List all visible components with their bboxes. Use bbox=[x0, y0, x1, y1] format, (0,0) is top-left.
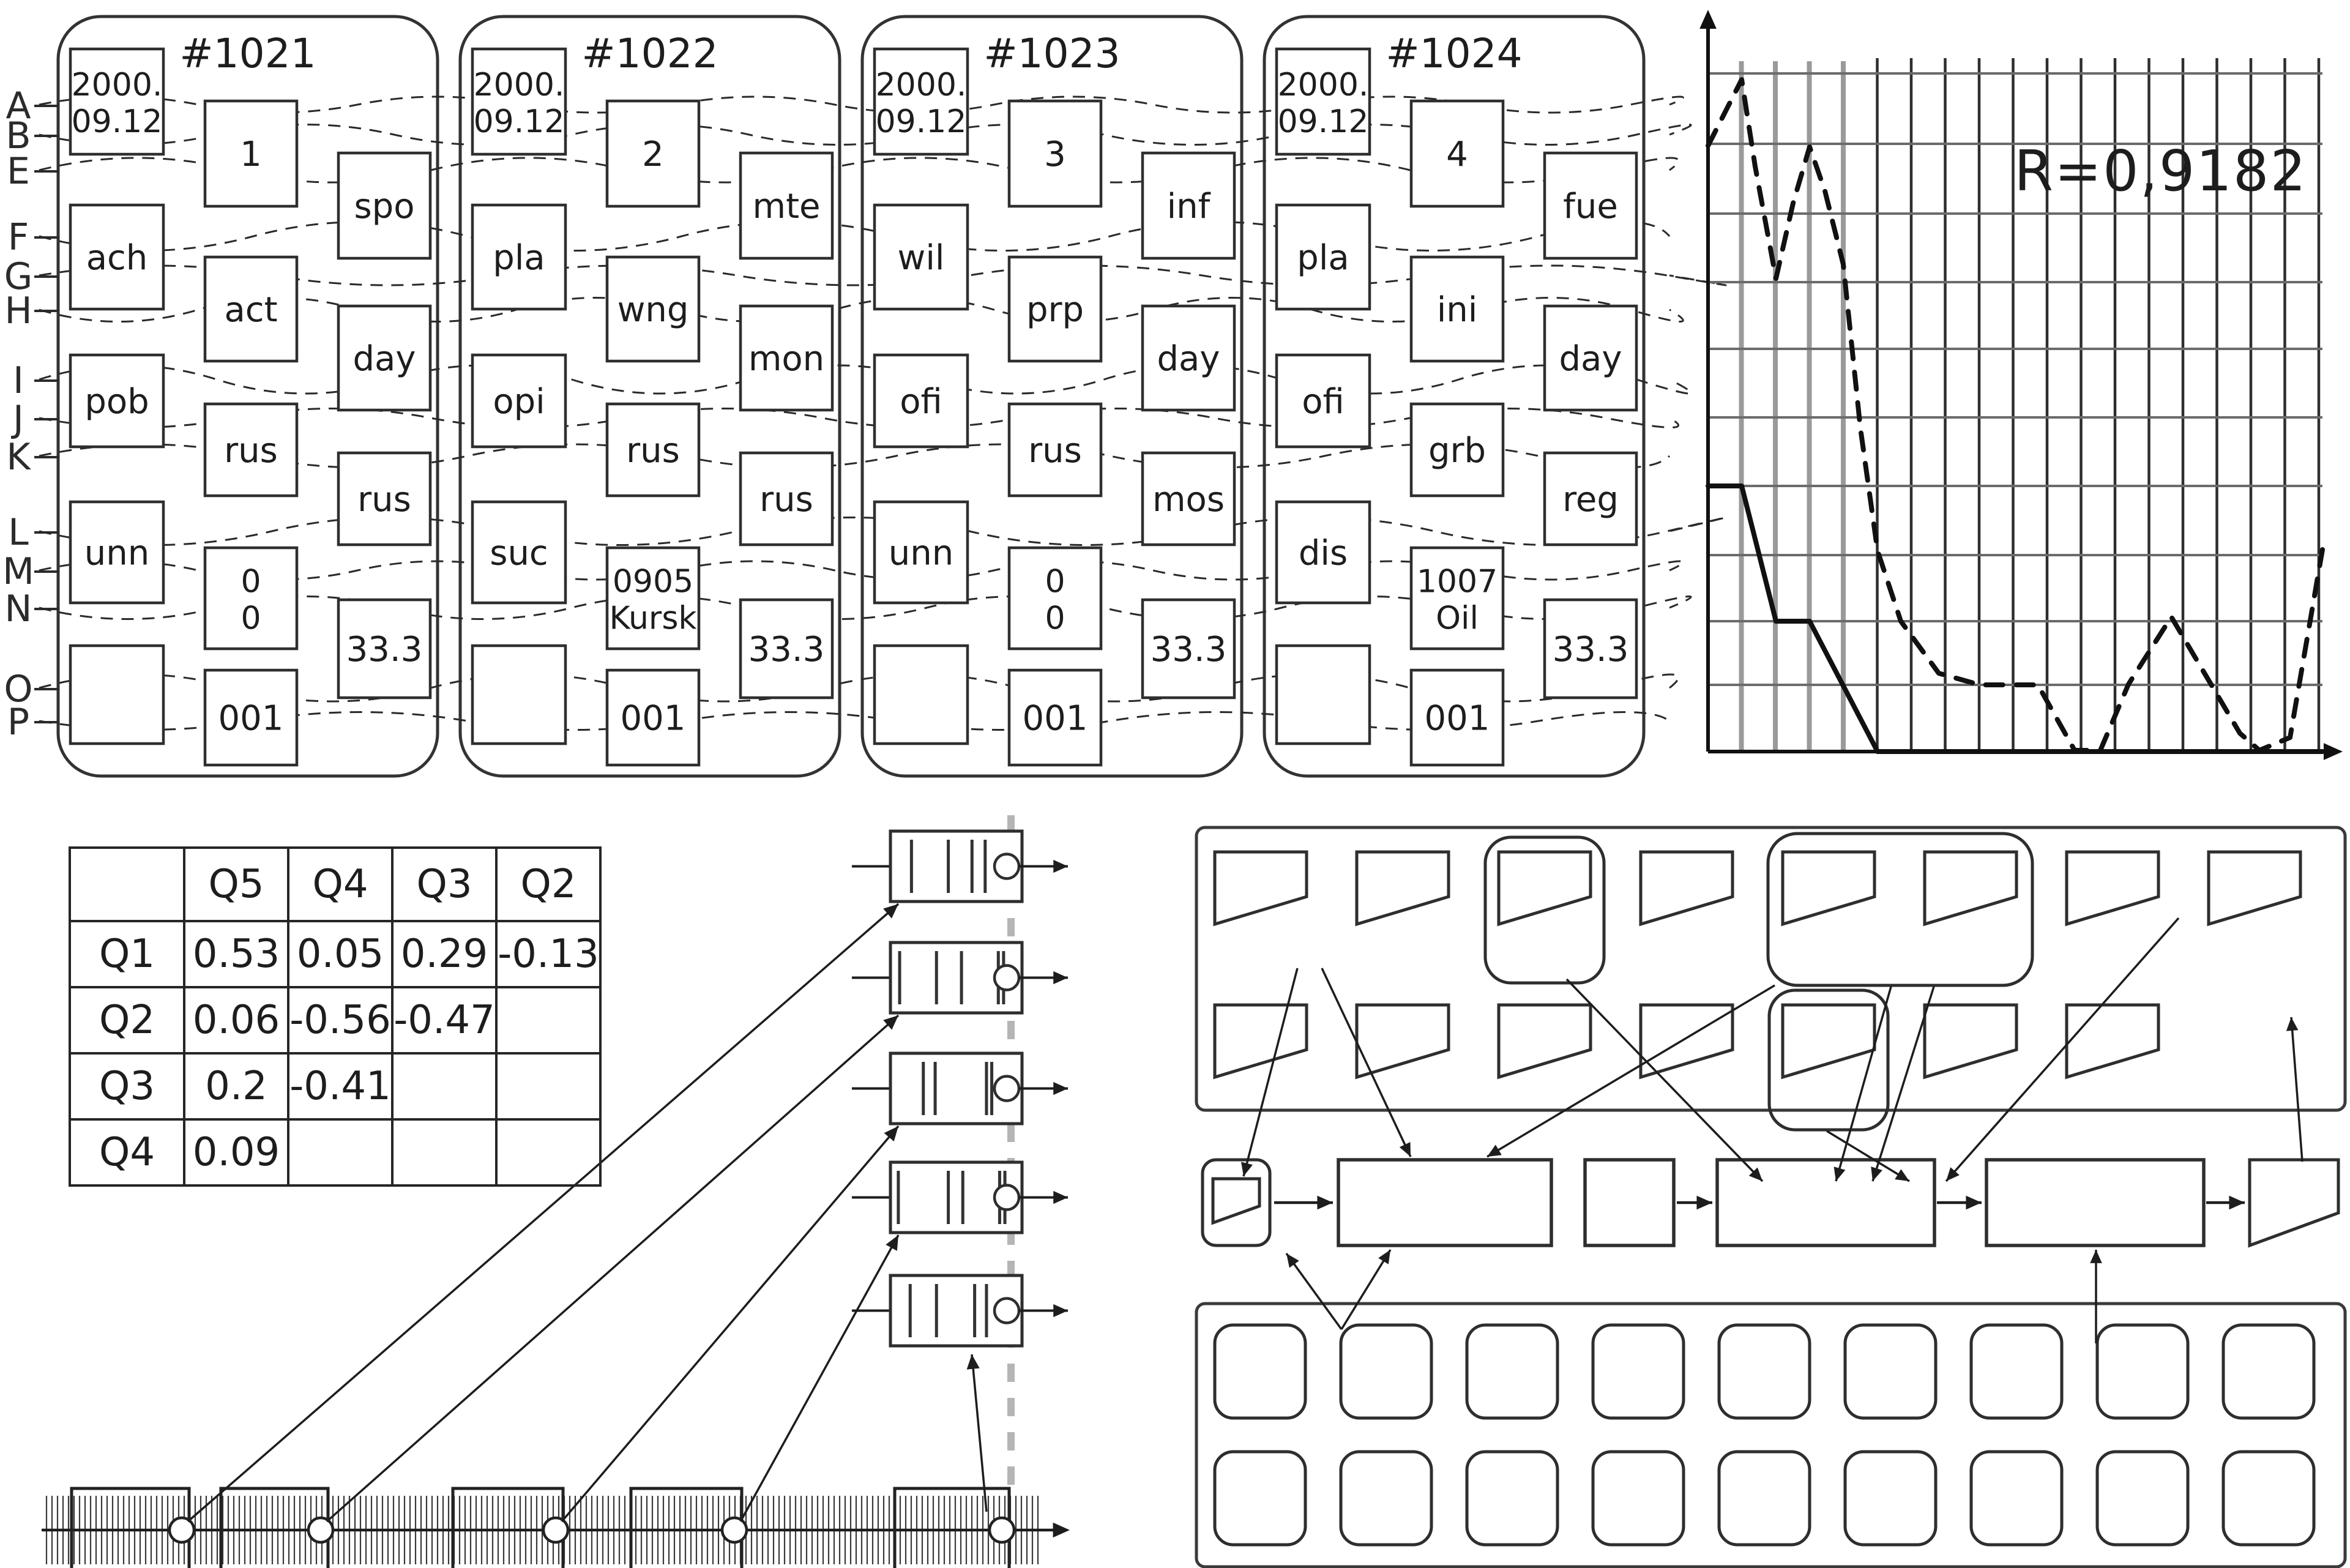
table-row-Q4: Q40.09 bbox=[70, 1119, 600, 1185]
svg-text:day: day bbox=[1157, 339, 1220, 379]
row-label-I: I bbox=[13, 359, 24, 402]
case-library-bottom bbox=[1196, 1304, 2345, 1567]
svg-text:pob: pob bbox=[84, 382, 149, 422]
svg-text:wng: wng bbox=[617, 290, 689, 330]
corner-cell bbox=[70, 848, 184, 921]
memory-cell bbox=[1467, 1452, 1557, 1545]
record-id: #1023 bbox=[983, 30, 1120, 77]
svg-text:spo: spo bbox=[354, 187, 415, 226]
correlation-table: Q5Q4Q3Q2Q10.530.050.29-0.13Q20.06-0.56-0… bbox=[69, 846, 602, 1187]
row-header: Q4 bbox=[70, 1119, 184, 1185]
correlation-coefficient-label: R=0,9182 bbox=[2013, 138, 2307, 204]
flag-top-3 bbox=[1499, 852, 1591, 924]
strip-cut-point bbox=[308, 1518, 333, 1542]
svg-text:33.3: 33.3 bbox=[748, 630, 825, 670]
svg-text:unn: unn bbox=[84, 534, 149, 573]
row-label-M: M bbox=[2, 550, 34, 593]
row-label-F: F bbox=[8, 216, 29, 259]
svg-text:rus: rus bbox=[224, 431, 278, 471]
svg-text:2000.: 2000. bbox=[1278, 67, 1369, 103]
row-label-H: H bbox=[4, 289, 32, 332]
flag-top-1 bbox=[1215, 852, 1307, 924]
svg-text:09.12: 09.12 bbox=[474, 103, 565, 140]
svg-text:33.3: 33.3 bbox=[1151, 630, 1227, 670]
svg-text:inf: inf bbox=[1167, 187, 1211, 226]
svg-text:wil: wil bbox=[898, 238, 945, 278]
row-labels: ABEFGHIJKLMNOP bbox=[2, 84, 59, 744]
svg-text:ini: ini bbox=[1437, 290, 1478, 330]
col-header-Q3: Q3 bbox=[392, 848, 496, 921]
svg-text:33.3: 33.3 bbox=[346, 630, 423, 670]
strip-cut-point bbox=[990, 1518, 1014, 1542]
svg-text:09.12: 09.12 bbox=[1278, 103, 1369, 140]
table-cell: -0.56 bbox=[288, 987, 392, 1053]
field-left-3 bbox=[472, 646, 565, 744]
svg-text:fue: fue bbox=[1563, 187, 1618, 226]
chromosome-box-5 bbox=[852, 1275, 1068, 1346]
record-id: #1022 bbox=[581, 30, 718, 77]
svg-text:1007: 1007 bbox=[1417, 564, 1498, 600]
svg-text:09.12: 09.12 bbox=[876, 103, 967, 140]
svg-text:Oil: Oil bbox=[1436, 600, 1479, 637]
correlation-chart bbox=[1699, 10, 2343, 760]
row-label-L: L bbox=[8, 511, 29, 554]
table-cell: 0.06 bbox=[184, 987, 288, 1053]
svg-text:mte: mte bbox=[753, 187, 821, 226]
crossover-point bbox=[994, 1077, 1019, 1101]
svg-text:reg: reg bbox=[1562, 480, 1619, 520]
output-pennant bbox=[2250, 1160, 2338, 1245]
svg-text:dis: dis bbox=[1299, 534, 1348, 573]
flow-row bbox=[1203, 1160, 2338, 1245]
memory-cell bbox=[1341, 1452, 1431, 1545]
table-row-Q2: Q20.06-0.56-0.47 bbox=[70, 987, 600, 1053]
col-header-Q4: Q4 bbox=[288, 848, 392, 921]
chromosome-box-1 bbox=[852, 831, 1068, 902]
svg-text:2000.: 2000. bbox=[474, 67, 565, 103]
table-row-Q1: Q10.530.050.29-0.13 bbox=[70, 921, 600, 987]
table-cell: -0.13 bbox=[496, 921, 600, 987]
row-label-J: J bbox=[10, 398, 24, 441]
svg-text:2: 2 bbox=[642, 135, 664, 174]
svg-text:act: act bbox=[224, 290, 277, 330]
crossover-point bbox=[994, 854, 1019, 879]
flag-bottom-2 bbox=[1357, 1005, 1449, 1077]
svg-text:unn: unn bbox=[889, 534, 953, 573]
process-box-3 bbox=[1986, 1160, 2204, 1245]
crossover-point bbox=[994, 966, 1019, 990]
memory-cell bbox=[2097, 1452, 2188, 1545]
table-cell bbox=[392, 1119, 496, 1185]
table-cell: 0.05 bbox=[288, 921, 392, 987]
record-id: #1021 bbox=[179, 30, 316, 77]
svg-text:ofi: ofi bbox=[900, 382, 942, 422]
chromosome-box-3 bbox=[852, 1053, 1068, 1124]
chromosome-box-4 bbox=[852, 1162, 1068, 1233]
process-box-narrow bbox=[1585, 1160, 1674, 1245]
svg-text:pla: pla bbox=[493, 238, 545, 278]
memory-cell bbox=[1845, 1452, 1936, 1545]
col-header-Q5: Q5 bbox=[184, 848, 288, 921]
svg-text:33.3: 33.3 bbox=[1553, 630, 1629, 670]
svg-text:2000.: 2000. bbox=[876, 67, 967, 103]
memory-cell bbox=[1971, 1325, 2062, 1418]
field-left-3 bbox=[70, 646, 163, 744]
memory-cell bbox=[2097, 1325, 2188, 1418]
svg-text:0: 0 bbox=[1045, 564, 1065, 600]
svg-text:opi: opi bbox=[493, 382, 545, 422]
row-header: Q3 bbox=[70, 1053, 184, 1119]
row-header: Q2 bbox=[70, 987, 184, 1053]
flag-bottom-6 bbox=[1925, 1005, 2016, 1077]
table-row-Q3: Q30.2-0.41 bbox=[70, 1053, 600, 1119]
svg-text:4: 4 bbox=[1446, 135, 1468, 174]
solid-stepped-decline-series bbox=[1708, 486, 2322, 752]
table-header-row: Q5Q4Q3Q2 bbox=[70, 848, 600, 921]
svg-text:rus: rus bbox=[759, 480, 813, 520]
field-left-3 bbox=[875, 646, 968, 744]
flag-top-4 bbox=[1641, 852, 1733, 924]
memory-cell bbox=[1971, 1452, 2062, 1545]
svg-text:Kursk: Kursk bbox=[609, 600, 696, 637]
table-cell: 0.2 bbox=[184, 1053, 288, 1119]
svg-text:0: 0 bbox=[1045, 600, 1065, 637]
record-card-fields-#1023: #10232000.09.12wilofiunn3prprus00001infd… bbox=[875, 30, 1234, 765]
flag-bottom-7 bbox=[2067, 1005, 2158, 1077]
memory-cell bbox=[1341, 1325, 1431, 1418]
memory-cell bbox=[1593, 1452, 1684, 1545]
table-cell bbox=[496, 1119, 600, 1185]
svg-text:day: day bbox=[352, 339, 416, 379]
row-label-E: E bbox=[7, 150, 30, 193]
svg-text:001: 001 bbox=[218, 699, 284, 739]
field-left-3 bbox=[1277, 646, 1370, 744]
table-cell: 0.29 bbox=[392, 921, 496, 987]
figure-canvas: ABEFGHIJKLMNOP#10212000.09.12achpobunn1a… bbox=[0, 0, 2350, 1568]
svg-text:grb: grb bbox=[1428, 431, 1486, 471]
row-header: Q1 bbox=[70, 921, 184, 987]
svg-text:pla: pla bbox=[1297, 238, 1349, 278]
svg-text:09.12: 09.12 bbox=[72, 103, 163, 140]
memory-cell bbox=[1593, 1325, 1684, 1418]
svg-text:mos: mos bbox=[1152, 480, 1225, 520]
memory-cell bbox=[1215, 1325, 1305, 1418]
process-box-1 bbox=[1338, 1160, 1551, 1245]
flag-bottom-1 bbox=[1215, 1005, 1307, 1077]
schema-arrows bbox=[1241, 918, 2302, 1343]
flag-bottom-3 bbox=[1499, 1005, 1591, 1077]
memory-cell bbox=[2223, 1325, 2314, 1418]
record-card-fields-#1022: #10222000.09.12plaopisuc2wngrus0905Kursk… bbox=[472, 30, 832, 765]
flag-top-6 bbox=[1925, 852, 2016, 924]
flag-top-2 bbox=[1357, 852, 1449, 924]
table-cell: -0.47 bbox=[392, 987, 496, 1053]
svg-text:1: 1 bbox=[240, 135, 262, 174]
record-card-fields-#1021: #10212000.09.12achpobunn1actrus00001spod… bbox=[70, 30, 430, 765]
table-cell bbox=[496, 1053, 600, 1119]
records-panel: ABEFGHIJKLMNOP#10212000.09.12achpobunn1a… bbox=[2, 17, 1726, 776]
memory-cell bbox=[2223, 1452, 2314, 1545]
svg-text:rus: rus bbox=[357, 480, 411, 520]
memory-cell bbox=[1719, 1452, 1810, 1545]
memory-cell bbox=[1845, 1325, 1936, 1418]
memory-cell bbox=[1215, 1452, 1305, 1545]
memory-cell bbox=[1719, 1325, 1810, 1418]
strip-cut-point bbox=[170, 1518, 194, 1542]
flag-bottom-4 bbox=[1641, 1005, 1733, 1077]
svg-text:day: day bbox=[1559, 339, 1622, 379]
svg-text:ach: ach bbox=[86, 238, 148, 278]
svg-text:rus: rus bbox=[1028, 431, 1082, 471]
strip-cut-point bbox=[543, 1518, 568, 1542]
svg-text:001: 001 bbox=[621, 699, 686, 739]
row-label-P: P bbox=[7, 701, 29, 744]
flag-top-8 bbox=[2209, 852, 2300, 924]
crossover-point bbox=[994, 1299, 1019, 1323]
col-header-Q2: Q2 bbox=[496, 848, 600, 921]
svg-text:001: 001 bbox=[1425, 699, 1490, 739]
svg-text:suc: suc bbox=[490, 534, 548, 573]
svg-text:0: 0 bbox=[241, 564, 261, 600]
record-card-fields-#1024: #10242000.09.12plaofidis4inigrb1007Oil00… bbox=[1277, 30, 1636, 765]
row-label-K: K bbox=[6, 436, 31, 479]
svg-text:rus: rus bbox=[626, 431, 680, 471]
flag-bottom-5 bbox=[1783, 1005, 1874, 1077]
svg-text:mon: mon bbox=[748, 339, 824, 379]
svg-text:3: 3 bbox=[1044, 135, 1066, 174]
row-label-N: N bbox=[5, 588, 32, 630]
svg-text:0905: 0905 bbox=[613, 564, 693, 600]
tape-strip-5 bbox=[895, 1488, 1014, 1568]
table-cell: -0.41 bbox=[288, 1053, 392, 1119]
strip-cut-point bbox=[722, 1518, 747, 1542]
table-cell bbox=[288, 1119, 392, 1185]
table-cell bbox=[392, 1053, 496, 1119]
chromosome-box-2 bbox=[852, 943, 1068, 1013]
svg-text:ofi: ofi bbox=[1302, 382, 1345, 422]
record-id: #1024 bbox=[1386, 30, 1522, 77]
svg-text:2000.: 2000. bbox=[72, 67, 163, 103]
table-cell: 0.53 bbox=[184, 921, 288, 987]
chart-axes bbox=[1699, 10, 2343, 760]
table-cell: 0.09 bbox=[184, 1119, 288, 1185]
svg-text:prp: prp bbox=[1026, 290, 1084, 330]
table-cell bbox=[496, 987, 600, 1053]
svg-text:001: 001 bbox=[1023, 699, 1088, 739]
memory-cell bbox=[1467, 1325, 1557, 1418]
flag-top-7 bbox=[2067, 852, 2158, 924]
flag-top-5 bbox=[1783, 852, 1874, 924]
schema-panel bbox=[1196, 827, 2345, 1567]
figure-svg: ABEFGHIJKLMNOP#10212000.09.12achpobunn1a… bbox=[0, 0, 2350, 1568]
svg-text:0: 0 bbox=[241, 600, 261, 637]
crossover-point bbox=[994, 1185, 1019, 1210]
